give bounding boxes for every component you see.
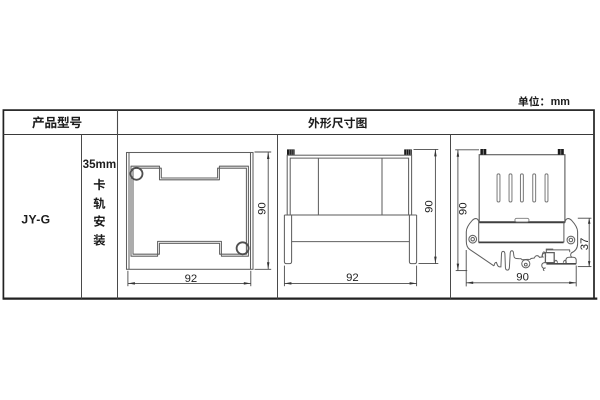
svg-text:90: 90 <box>424 200 436 213</box>
svg-text:mm: mm <box>551 96 571 108</box>
svg-text:92: 92 <box>185 273 198 285</box>
svg-text:37: 37 <box>579 238 591 251</box>
svg-text:92: 92 <box>346 272 359 284</box>
svg-text:90: 90 <box>457 203 469 216</box>
svg-text:JY-G: JY-G <box>21 213 50 227</box>
svg-text:90: 90 <box>256 202 268 215</box>
svg-text:90: 90 <box>516 271 529 283</box>
svg-text:35mm: 35mm <box>83 158 117 171</box>
